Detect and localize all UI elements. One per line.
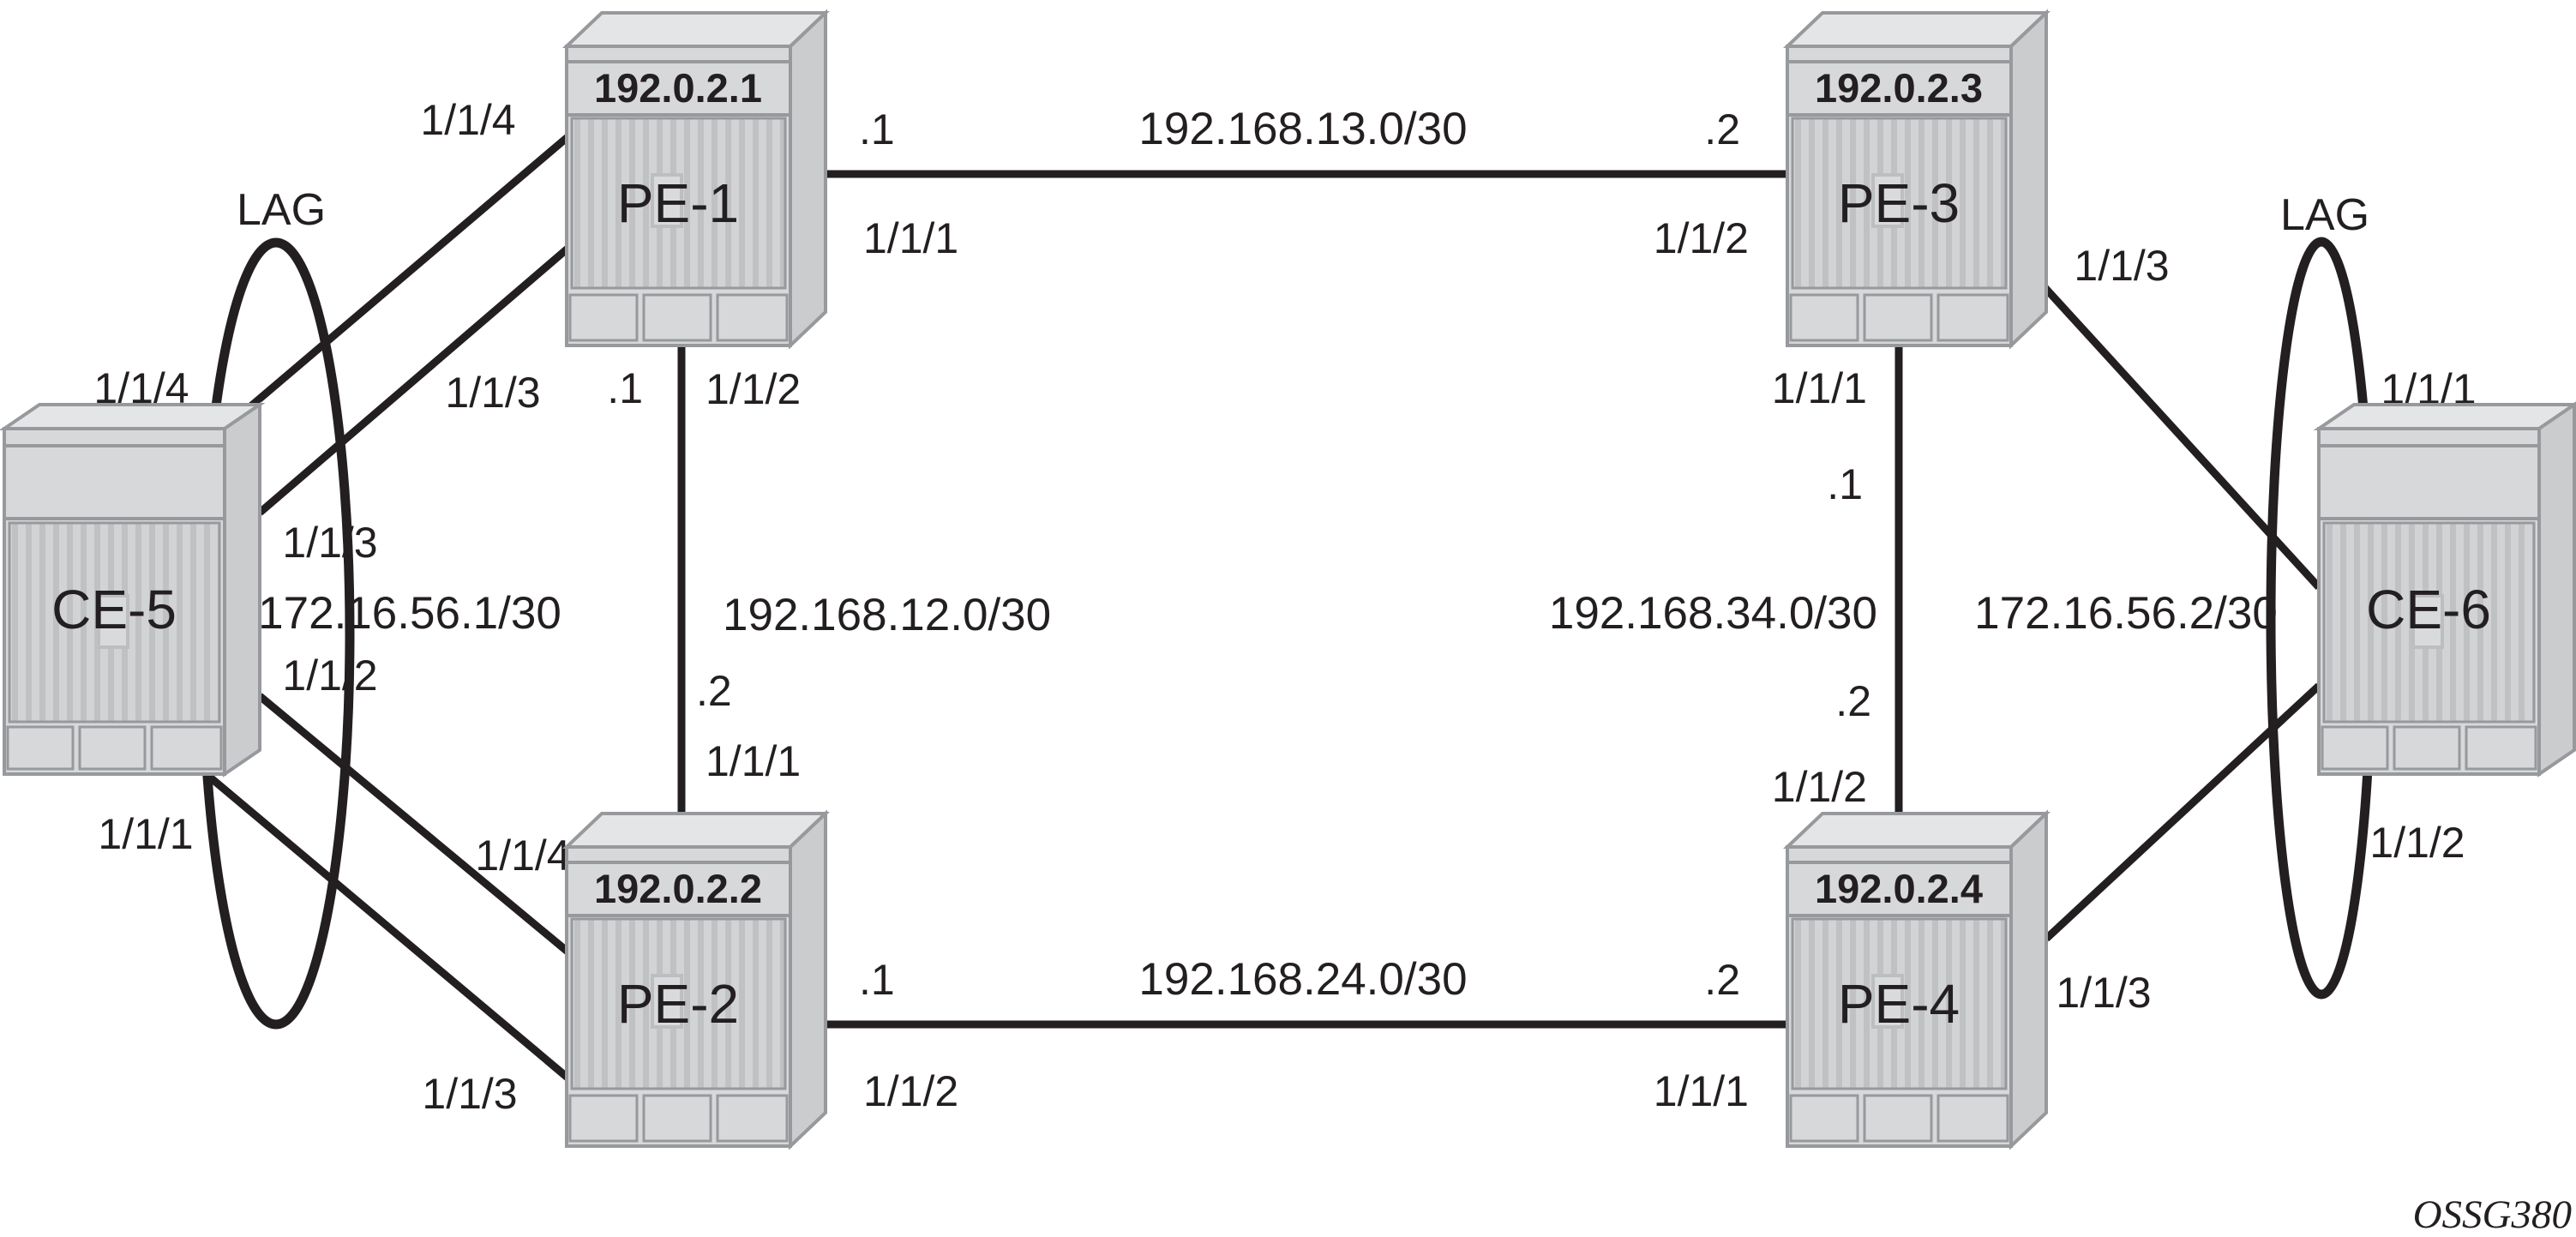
subnet-label-pe2-pe4: 192.168.24.0/30 [1138, 954, 1467, 1005]
addr-label: .1 [859, 105, 895, 153]
box-panel [1864, 295, 1931, 340]
box-header-band [2319, 446, 2539, 519]
box-panel [718, 1096, 787, 1141]
port-label: 1/1/1 [863, 214, 958, 262]
box-side-face [2011, 814, 2046, 1146]
labels-layer: .1 192.168.13.0/30 .2 1/1/1 1/1/2 .1 1/1… [93, 96, 2572, 1237]
port-label: 1/1/4 [475, 832, 570, 880]
addr-label: .2 [696, 667, 732, 715]
node-name: CE-6 [2366, 579, 2491, 640]
box-top-face [1787, 814, 2046, 847]
node-ip: 192.0.2.2 [594, 866, 762, 911]
port-label: 1/1/3 [282, 519, 377, 567]
node-pe3: 192.0.2.3 PE-3 [1787, 13, 2046, 345]
addr-label: .1 [1827, 460, 1863, 508]
subnet-label-pe3-pe4: 192.168.34.0/30 [1549, 588, 1877, 639]
addr-label: .2 [1704, 105, 1740, 153]
addr-label: .2 [1704, 956, 1740, 1004]
box-panel [8, 727, 73, 769]
link-ce5-pe2-a [260, 696, 567, 952]
box-panel [644, 1096, 711, 1141]
node-name: CE-5 [51, 579, 177, 640]
port-label: 1/1/2 [1772, 763, 1867, 811]
port-label: 1/1/2 [2369, 819, 2465, 867]
box-panel [1791, 295, 1858, 340]
addr-label: .2 [1835, 677, 1871, 725]
figure-code: OSSG380 [2413, 1192, 2572, 1237]
box-header-band [4, 446, 225, 519]
box-side-face [2011, 13, 2046, 345]
box-top-face [567, 814, 826, 847]
box-panel [2322, 727, 2387, 769]
port-label: 1/1/1 [1772, 364, 1867, 412]
box-top-face [4, 405, 260, 429]
box-top-face [2319, 405, 2574, 429]
subnet-label-ce6: 172.16.56.2/30 [1974, 588, 2278, 639]
addr-label: .1 [859, 956, 895, 1004]
box-panel [2394, 727, 2459, 769]
subnet-label-pe1-pe2: 192.168.12.0/30 [723, 590, 1051, 640]
node-ce5: CE-5 [4, 405, 260, 774]
box-panel [1864, 1096, 1931, 1141]
node-ce6: CE-6 [2319, 405, 2574, 774]
node-name: PE-4 [1838, 973, 1960, 1035]
box-top-face [1787, 13, 2046, 46]
lag-label-left: LAG [237, 185, 326, 235]
node-pe4: 192.0.2.4 PE-4 [1787, 814, 2046, 1146]
box-panel [570, 1096, 637, 1141]
node-name: PE-1 [617, 172, 739, 234]
box-panel [644, 295, 711, 340]
box-panel [80, 727, 145, 769]
box-top-face [567, 13, 826, 46]
box-side-face [225, 405, 260, 774]
figure-container: .1 192.168.13.0/30 .2 1/1/1 1/1/2 .1 1/1… [0, 0, 2576, 1237]
subnet-label-pe1-pe3: 192.168.13.0/30 [1138, 104, 1467, 154]
link-ce5-pe2-b [208, 776, 567, 1078]
port-label: 1/1/2 [706, 365, 801, 413]
box-panel [2466, 727, 2536, 769]
port-label: 1/1/3 [445, 369, 540, 417]
box-side-face [790, 13, 826, 345]
addr-label: .1 [607, 364, 643, 412]
port-label: 1/1/4 [420, 96, 515, 144]
port-label: 1/1/1 [98, 810, 193, 858]
box-panel [1791, 1096, 1858, 1141]
box-panel [718, 295, 787, 340]
node-ip: 192.0.2.1 [594, 65, 762, 111]
box-side-face [790, 814, 826, 1146]
node-ip: 192.0.2.4 [1815, 866, 1983, 911]
node-ip: 192.0.2.3 [1815, 65, 1983, 111]
node-name: PE-2 [617, 973, 739, 1035]
port-label: 1/1/3 [422, 1070, 517, 1118]
port-label: 1/1/2 [282, 652, 377, 700]
box-side-face [2539, 405, 2574, 774]
port-label: 1/1/1 [706, 737, 801, 785]
port-label: 1/1/1 [1654, 1067, 1749, 1115]
box-panel [1938, 295, 2008, 340]
box-panel [1938, 1096, 2008, 1141]
subnet-label-ce5: 172.16.56.1/30 [258, 588, 561, 639]
network-topology-diagram: .1 192.168.13.0/30 .2 1/1/1 1/1/2 .1 1/1… [0, 0, 2576, 1237]
port-label: 1/1/2 [1654, 214, 1749, 262]
node-name: PE-3 [1838, 172, 1960, 234]
node-pe1: 192.0.2.1 PE-1 [567, 13, 826, 345]
port-label: 1/1/3 [2056, 969, 2151, 1017]
port-label: 1/1/2 [863, 1067, 958, 1115]
box-panel [570, 295, 637, 340]
port-label: 1/1/3 [2074, 242, 2169, 290]
node-pe2: 192.0.2.2 PE-2 [567, 814, 826, 1146]
lag-label-right: LAG [2280, 190, 2369, 240]
box-panel [152, 727, 221, 769]
